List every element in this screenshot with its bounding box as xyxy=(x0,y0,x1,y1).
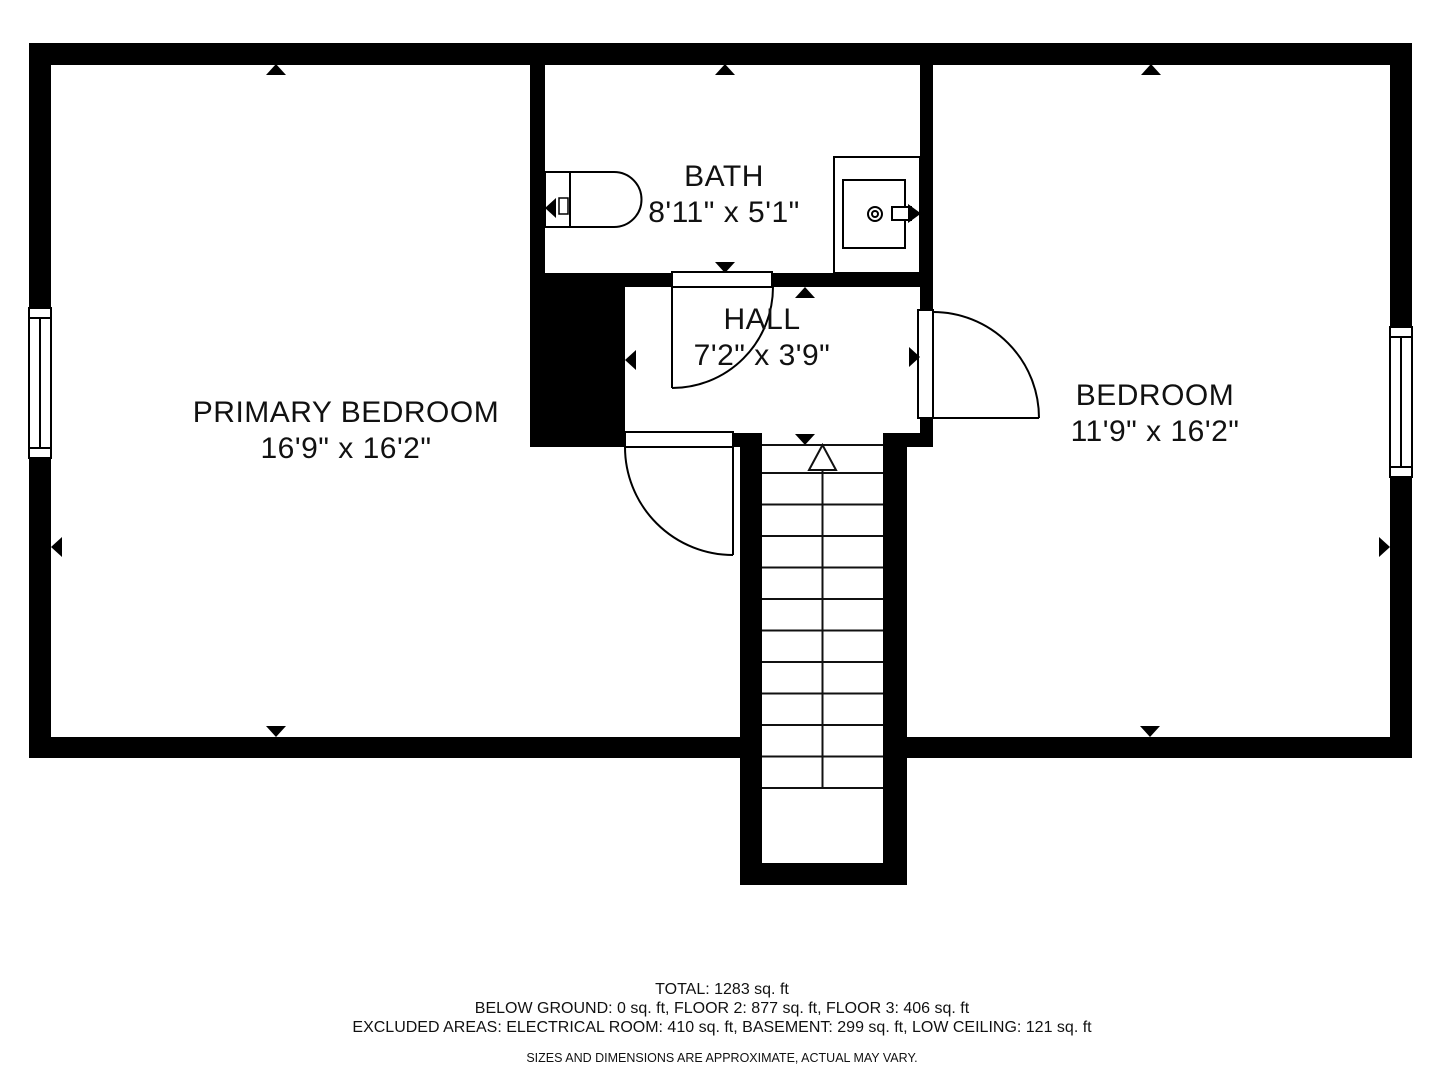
floor-plan-page: PRIMARY BEDROOM 16'9" x 16'2" BATH 8'11"… xyxy=(0,0,1440,1080)
room-dimensions: 8'11" x 5'1" xyxy=(648,195,800,231)
toilet-icon xyxy=(545,172,642,227)
shower-icon xyxy=(834,157,921,273)
floor-areas-text: BELOW GROUND: 0 sq. ft, FLOOR 2: 877 sq.… xyxy=(352,999,1091,1018)
primary-bedroom-door-icon xyxy=(625,432,733,555)
primary-bedroom-label: PRIMARY BEDROOM 16'9" x 16'2" xyxy=(193,395,499,467)
excluded-areas-text: EXCLUDED AREAS: ELECTRICAL ROOM: 410 sq.… xyxy=(352,1018,1091,1037)
hall-label: HALL 7'2" x 3'9" xyxy=(694,302,831,374)
room-dimensions: 7'2" x 3'9" xyxy=(694,338,831,374)
bedroom-door-icon xyxy=(918,310,1039,418)
room-name: PRIMARY BEDROOM xyxy=(193,395,499,431)
area-summary: TOTAL: 1283 sq. ft BELOW GROUND: 0 sq. f… xyxy=(352,980,1091,1068)
room-name: BATH xyxy=(648,159,800,195)
room-name: BEDROOM xyxy=(1071,378,1240,414)
bedroom-label: BEDROOM 11'9" x 16'2" xyxy=(1071,378,1240,450)
stairs-up-arrow-icon xyxy=(809,445,836,470)
room-dimensions: 16'9" x 16'2" xyxy=(193,431,499,467)
disclaimer-text: SIZES AND DIMENSIONS ARE APPROXIMATE, AC… xyxy=(352,1049,1091,1068)
room-dimensions: 11'9" x 16'2" xyxy=(1071,414,1240,450)
window-right-icon xyxy=(1390,327,1412,477)
window-left-icon xyxy=(29,308,51,458)
room-name: HALL xyxy=(694,302,831,338)
total-area-text: TOTAL: 1283 sq. ft xyxy=(352,980,1091,999)
bath-label: BATH 8'11" x 5'1" xyxy=(648,159,800,231)
